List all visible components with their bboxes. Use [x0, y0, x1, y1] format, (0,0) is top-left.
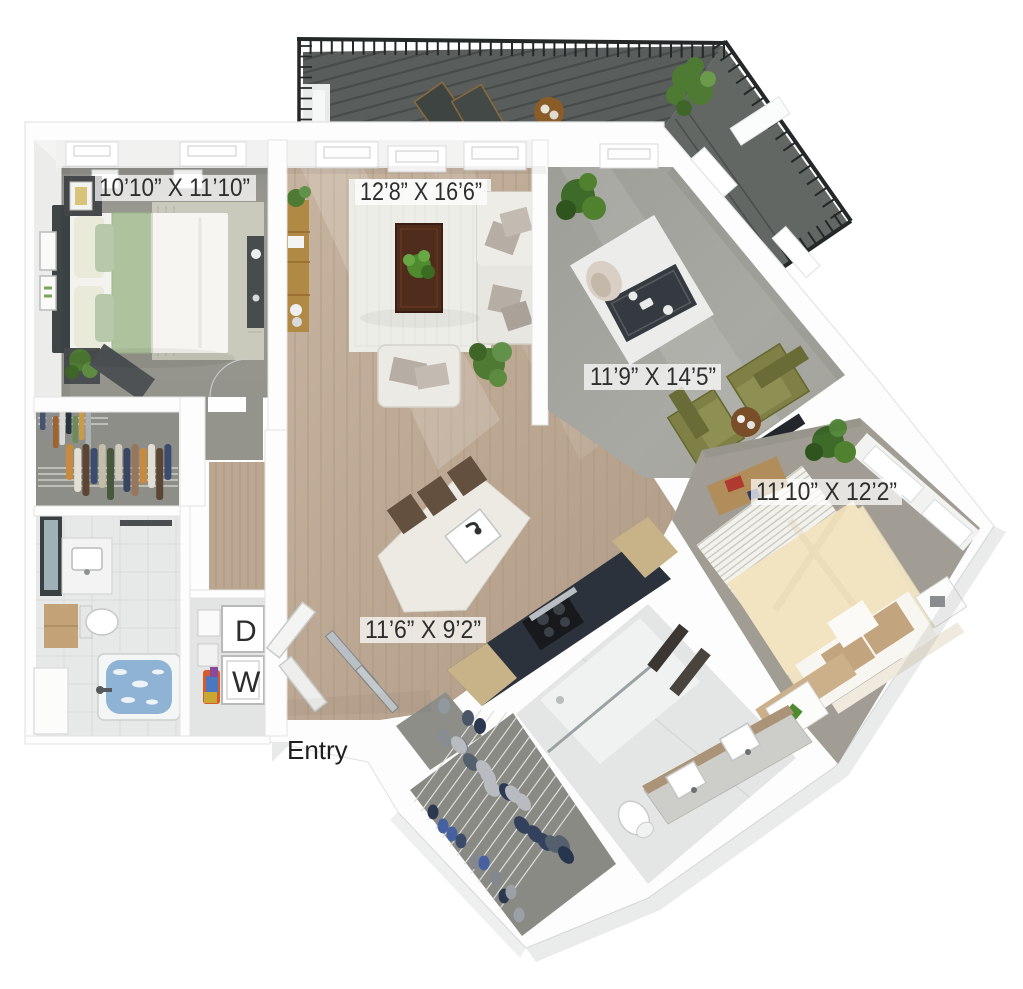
svg-text:11’6” X 9’2”: 11’6” X 9’2” [365, 616, 481, 644]
svg-text:11’10” X 12’2”: 11’10” X 12’2” [756, 478, 897, 506]
svg-text:12’8” X 16’6”: 12’8” X 16’6” [360, 178, 482, 206]
svg-text:11’9” X 14’5”: 11’9” X 14’5” [590, 363, 716, 391]
svg-text:D: D [235, 615, 257, 648]
svg-text:10’10” X 11’10”: 10’10” X 11’10” [99, 174, 250, 202]
svg-text:Entry: Entry [287, 735, 348, 765]
svg-text:W: W [232, 666, 261, 699]
